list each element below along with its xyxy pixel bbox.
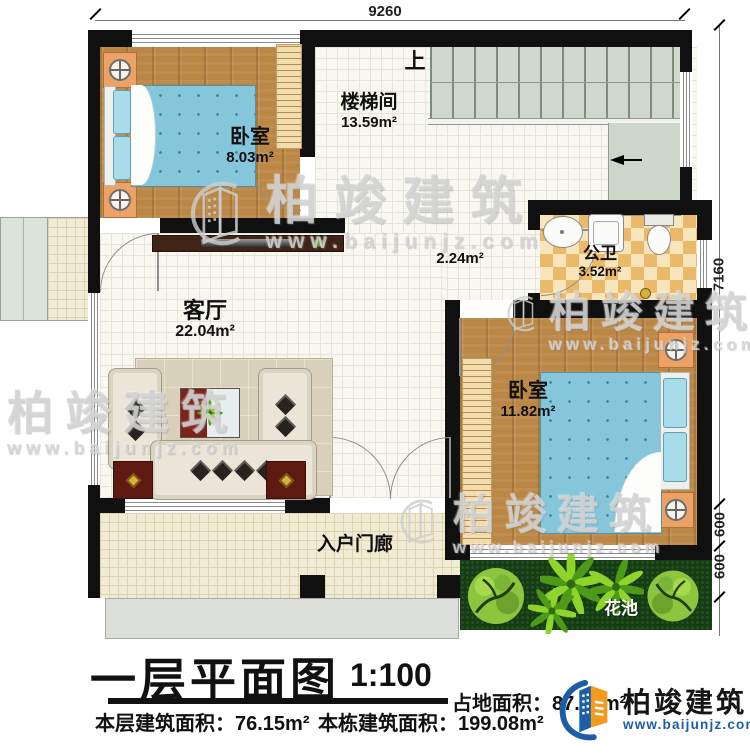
tv-console — [152, 235, 344, 252]
room-label-flower-bed: 花池 — [593, 599, 649, 619]
wall-bathroom-left-a — [528, 200, 540, 230]
wall-living-bottom-a — [88, 498, 125, 513]
wall-bathroom-top — [528, 200, 712, 215]
logo-mark-icon — [558, 678, 620, 742]
room-label-bathroom: 公卫 3.52m² — [560, 244, 640, 279]
lamp-icon — [665, 339, 687, 361]
room-label-living: 客厅 22.04m² — [150, 298, 260, 342]
console-plant — [313, 239, 325, 247]
floor-plan-canvas: 卧室 8.03m² 楼梯间 13.59m² 上 2.24m² 公卫 3.52m²… — [0, 0, 750, 753]
lamp-icon — [665, 499, 687, 521]
drawing-scale: 1:100 — [350, 657, 432, 694]
room-name: 卧室 — [473, 380, 583, 403]
room-name: 客厅 — [150, 298, 260, 323]
site-area-label: 占地面积： — [452, 693, 552, 715]
room-area: 3.52m² — [560, 264, 640, 280]
exterior-step-line — [23, 218, 24, 320]
sofa-cushion — [190, 459, 211, 480]
sofa-cushion — [124, 397, 145, 418]
stair-mid-line — [430, 82, 680, 83]
washer-lid — [593, 221, 619, 245]
room-area: 22.04m² — [150, 323, 260, 341]
bed-pillow — [663, 378, 687, 428]
dim-tick — [678, 8, 690, 20]
sofa-cushion — [234, 459, 255, 480]
flower-bed-palm — [528, 588, 576, 634]
up-text: 上 — [405, 50, 426, 73]
wall-living-bottom-b — [285, 498, 330, 513]
hallway-area: 2.24m² — [436, 250, 484, 267]
room-name: 卧室 — [195, 126, 305, 149]
entry-door-leaf-right — [449, 437, 451, 498]
title-underline — [108, 698, 448, 704]
entry-arrow-head — [610, 155, 624, 165]
wall-bedroom-top-bottom-b — [160, 218, 345, 233]
room-area: 13.59m² — [310, 114, 428, 131]
window-bedroom-top — [132, 30, 300, 47]
diamond-ornament-icon — [278, 472, 294, 488]
dim-top-label: 9260 — [355, 3, 415, 20]
sofa-cushion — [274, 393, 295, 414]
dim-right-600a: 600 — [712, 509, 729, 541]
room-label-stairwell: 楼梯间 13.59m² — [310, 92, 428, 131]
sink-drain — [560, 230, 564, 234]
stairs-up-label: 上 — [400, 50, 430, 74]
wall-porch-left — [88, 513, 100, 598]
company-logo: 柏竣建筑 www.baijunjz.com — [558, 678, 750, 742]
sofa-cushion — [212, 459, 233, 480]
bed-pillow — [663, 432, 687, 482]
lamp-icon — [109, 189, 131, 211]
coffee-table — [180, 388, 240, 438]
end-table — [113, 461, 153, 499]
logo-company-url: www.baijunjz.com — [623, 717, 750, 732]
end-table — [266, 461, 306, 499]
tv-screen — [201, 239, 291, 247]
table-plant-icon — [197, 400, 223, 426]
floor-area-text: 本层建筑面积：76.15m² — [95, 707, 310, 736]
door-leaf-bedroom-right — [459, 318, 461, 376]
room-label-bedroom-top: 卧室 8.03m² — [195, 126, 305, 166]
room-label-porch: 入户门廊 — [290, 534, 420, 556]
dim-tick — [89, 8, 101, 20]
bed-pillow — [113, 90, 131, 134]
window-stairwell-right — [680, 72, 692, 167]
room-name: 入户门廊 — [317, 534, 393, 555]
wall-bedroom-right-left — [445, 300, 460, 560]
stair-flight — [430, 47, 680, 120]
room-name: 公卫 — [560, 244, 640, 264]
room-name: 楼梯间 — [310, 92, 428, 114]
hallway-area-label: 2.24m² — [428, 250, 492, 267]
room-label-bedroom-right: 卧室 11.82m² — [473, 380, 583, 420]
floor-drain — [640, 288, 651, 299]
sofa-cushion — [124, 419, 145, 440]
porch-pillar-right — [437, 575, 460, 598]
diamond-ornament-icon — [125, 472, 141, 488]
entry-arrow-stem — [624, 159, 642, 161]
flower-bed-tree — [642, 566, 704, 626]
room-name: 花池 — [604, 599, 638, 618]
dim-line-top — [95, 20, 685, 21]
wall-bedroom-right-top-b — [513, 300, 697, 318]
room-area: 8.03m² — [195, 149, 305, 166]
dim-right-label: 7160 — [711, 251, 728, 299]
logo-company-name: 柏竣建筑 — [623, 688, 750, 717]
wall-living-bottom-c — [450, 498, 460, 513]
window-living-bottom — [125, 498, 285, 513]
nightstand — [658, 332, 694, 368]
bed-pillow — [113, 136, 131, 180]
entry-steps — [105, 598, 459, 639]
nightstand — [103, 182, 137, 218]
nightstand — [658, 492, 694, 528]
room-area: 11.82m² — [473, 403, 583, 420]
sofa-cushion — [274, 415, 295, 436]
flower-bed-tree — [462, 563, 530, 629]
porch-pillar-mid — [300, 575, 325, 598]
exterior-side-tile — [47, 218, 88, 320]
lamp-icon — [109, 59, 131, 81]
window-living-left — [88, 293, 100, 485]
nightstand — [103, 52, 137, 88]
wall-bedroom-top-bottom-a — [88, 218, 100, 233]
exterior-side-steps — [0, 217, 90, 321]
dim-right-600b: 600 — [712, 551, 729, 583]
